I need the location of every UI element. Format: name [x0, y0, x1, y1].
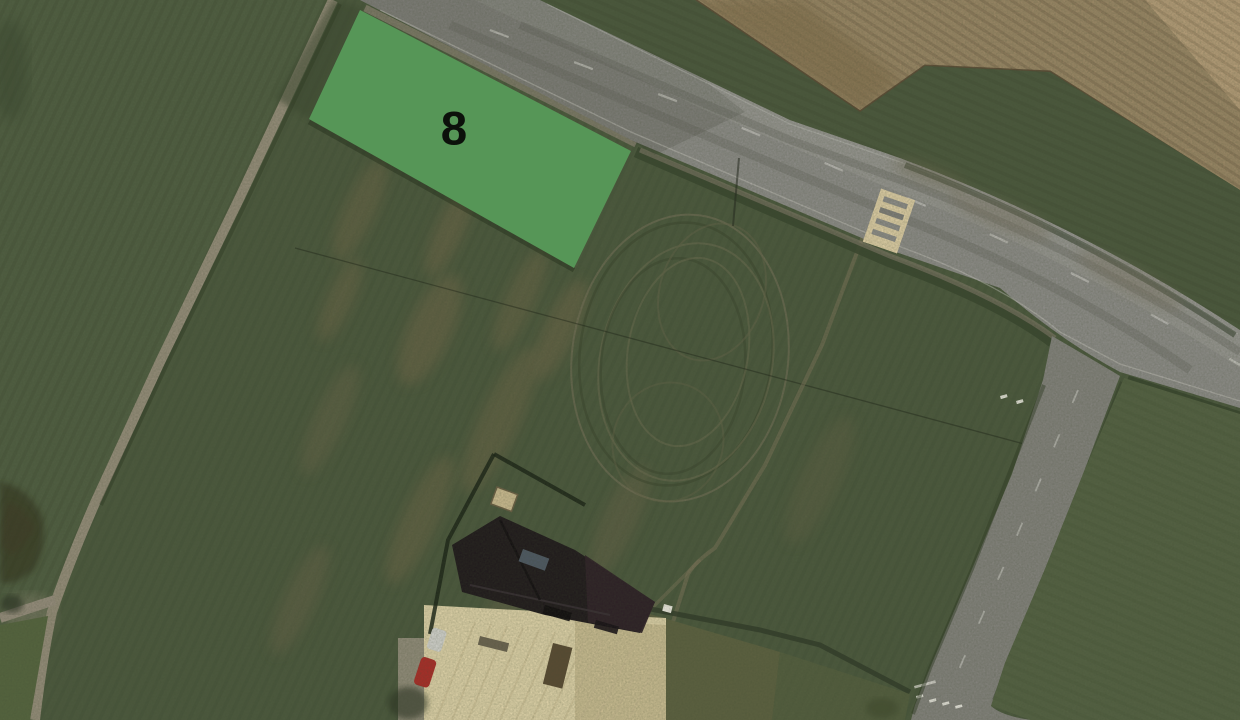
svg-text:8: 8	[441, 103, 467, 156]
